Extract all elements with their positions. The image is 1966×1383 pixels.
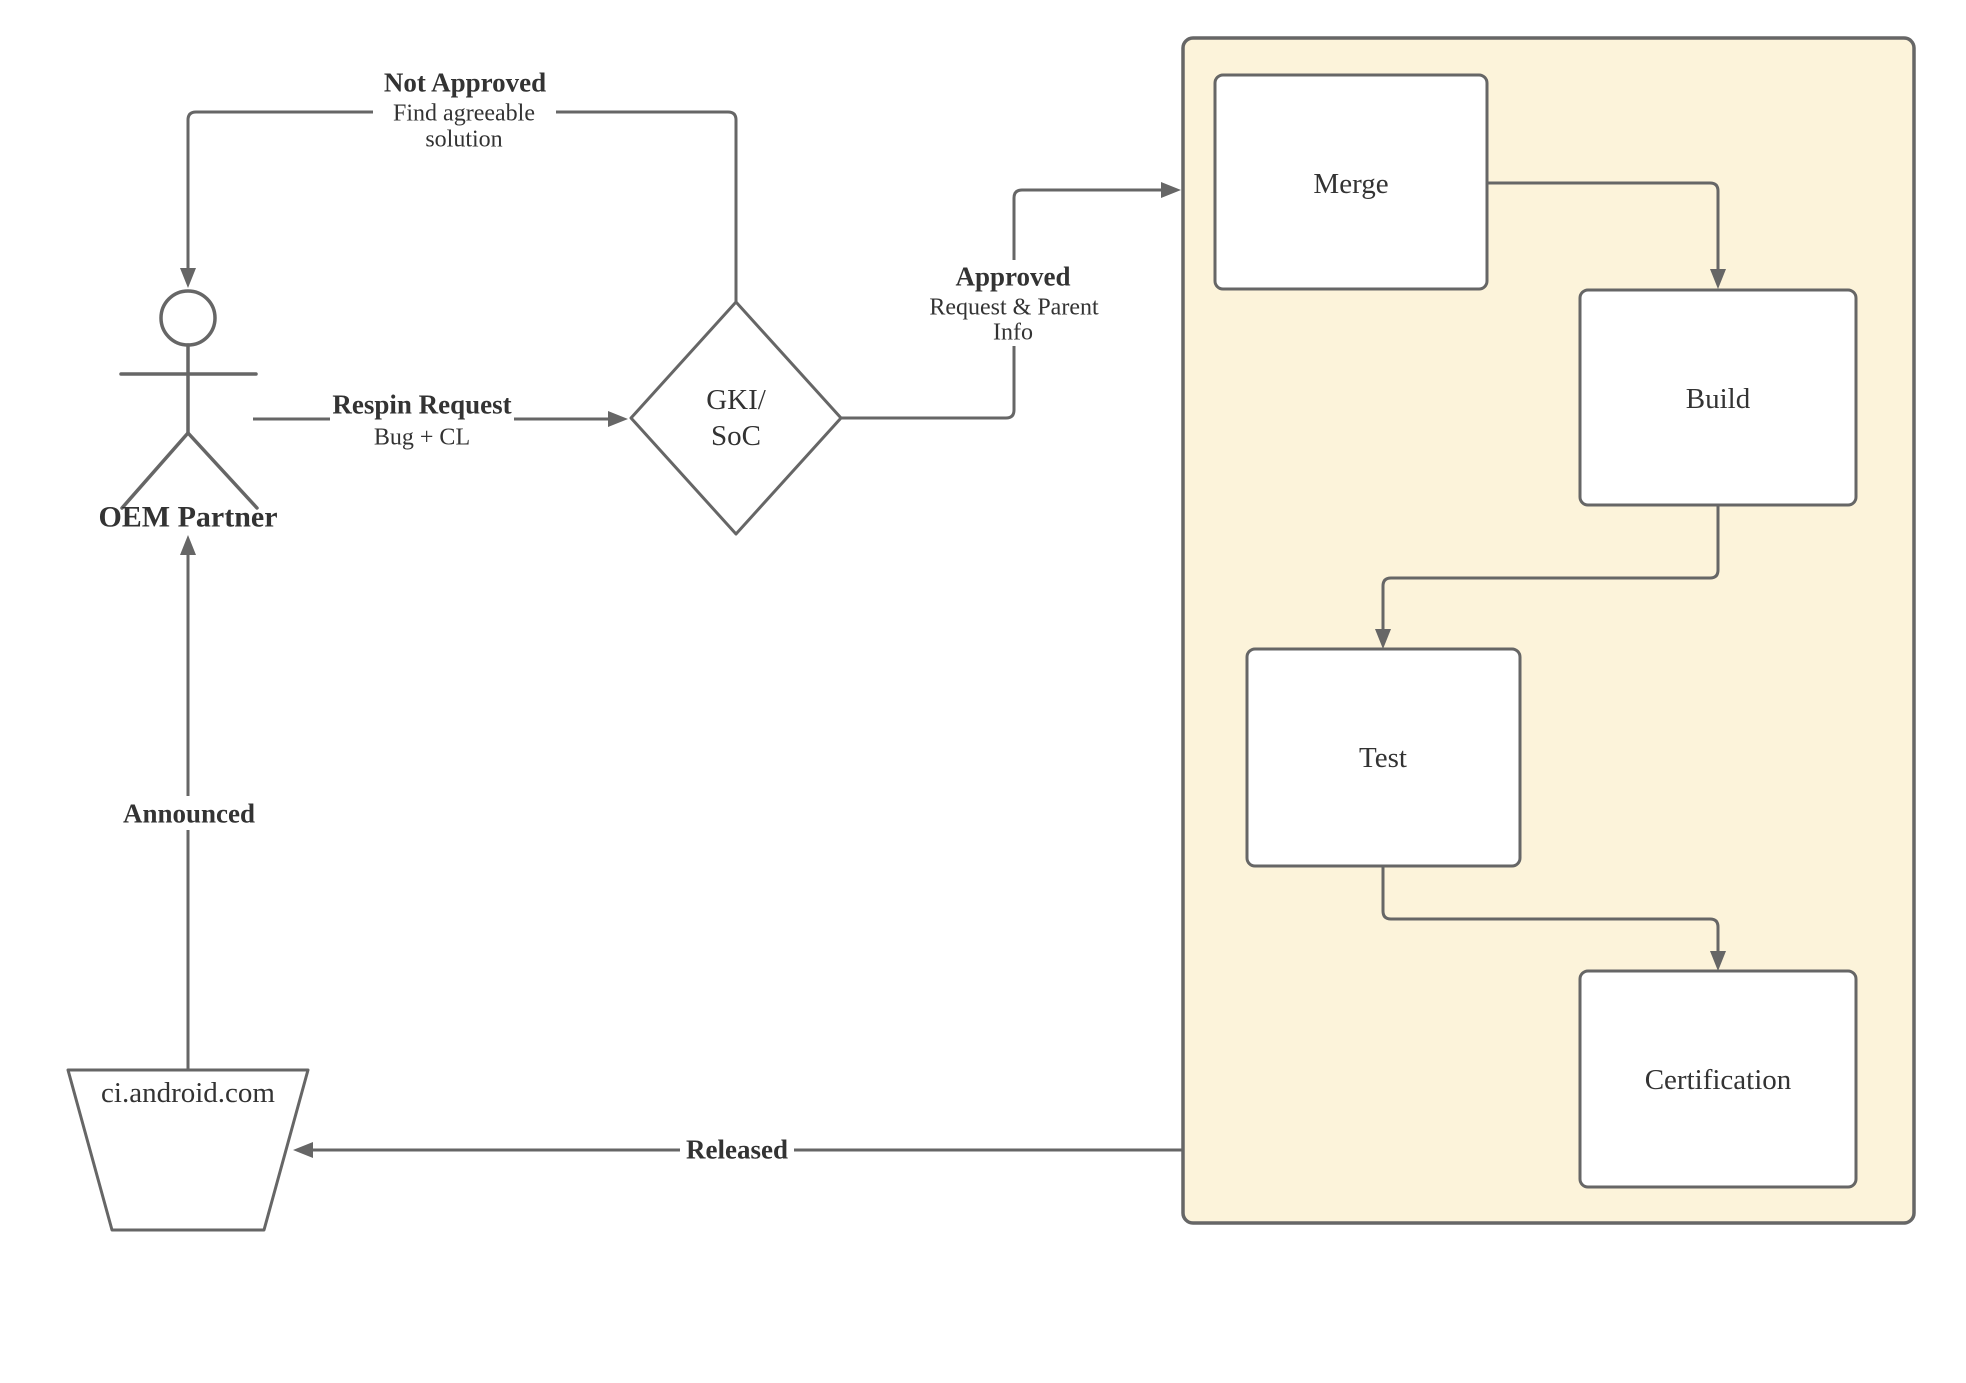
edge-announced-labels: Announced xyxy=(118,796,260,830)
gki-soc-label-line2: SoC xyxy=(711,420,761,452)
respin-request-subtitle-label: Bug + CL xyxy=(374,424,470,450)
trapezoid-ci-android: ci.android.com xyxy=(68,1070,308,1230)
flow-diagram-canvas: OEM Partner GKI/ SoC ci.android.com Merg… xyxy=(0,0,1966,1383)
not-approved-subtitle-line1: Find agreeable xyxy=(393,100,535,126)
stick-figure-icon xyxy=(121,291,257,508)
approved-title-label: Approved xyxy=(955,261,1070,291)
decision-gki-soc: GKI/ SoC xyxy=(631,302,841,534)
test-label: Test xyxy=(1359,742,1407,774)
node-build: Build xyxy=(1580,290,1856,505)
edge-approved-labels: Approved Request & Parent Info xyxy=(929,260,1099,346)
flow-diagram-page: OEM Partner GKI/ SoC ci.android.com Merg… xyxy=(0,0,1966,1383)
stick-figure-legs xyxy=(122,433,257,508)
gki-soc-label-line1: GKI/ xyxy=(706,384,767,416)
released-title-label: Released xyxy=(686,1134,788,1164)
node-certification: Certification xyxy=(1580,971,1856,1187)
edge-announced-arrowhead xyxy=(180,535,196,555)
edge-respin-request-labels: Respin Request Bug + CL xyxy=(330,388,514,450)
stick-figure-head xyxy=(161,291,215,345)
not-approved-subtitle-line2: solution xyxy=(425,126,502,152)
edge-not-approved-arrowhead xyxy=(180,268,196,288)
certification-label: Certification xyxy=(1645,1064,1792,1096)
oem-partner-label: OEM Partner xyxy=(98,501,277,534)
merge-label: Merge xyxy=(1313,168,1388,200)
edge-released-arrowhead xyxy=(293,1142,313,1158)
edge-released-labels: Released xyxy=(680,1132,794,1167)
respin-request-title-label: Respin Request xyxy=(332,389,511,419)
not-approved-title-label: Not Approved xyxy=(384,67,546,97)
announced-title-label: Announced xyxy=(123,798,255,828)
edge-not-approved-labels: Not Approved Find agreeable solution xyxy=(373,67,556,153)
node-merge: Merge xyxy=(1215,75,1487,289)
node-test: Test xyxy=(1247,649,1520,866)
approved-subtitle-line2: Info xyxy=(993,319,1033,345)
edge-approved-arrowhead xyxy=(1161,182,1181,198)
decision-gki-soc-shape xyxy=(631,302,841,534)
edge-respin-request-arrowhead xyxy=(608,411,628,427)
build-label: Build xyxy=(1686,383,1751,415)
approved-subtitle-line1: Request & Parent xyxy=(929,294,1099,320)
ci-android-label: ci.android.com xyxy=(101,1077,275,1109)
